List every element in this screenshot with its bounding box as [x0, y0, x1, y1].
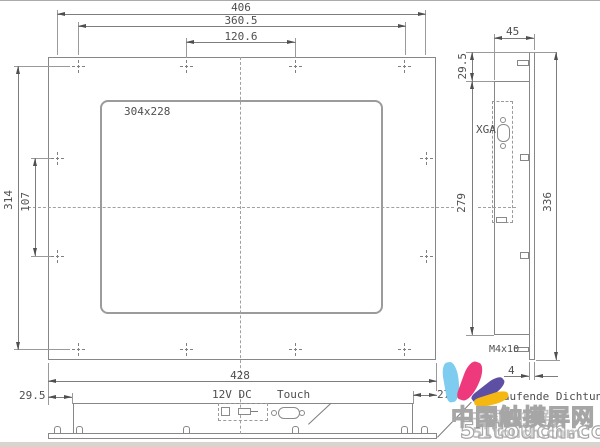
touch-connector-body: [278, 407, 300, 419]
mounting-clip: [76, 426, 83, 434]
vga-connector-screw: [500, 117, 506, 123]
mounting-hole: [51, 250, 64, 263]
watermark-url: 51touch.com: [460, 419, 600, 444]
mounting-hole: [420, 250, 433, 263]
side-centerline: [478, 207, 516, 208]
mounting-clip: [183, 426, 190, 434]
dim-arrow: [48, 379, 56, 383]
dim-arrow: [16, 66, 20, 74]
dim-label-279: 279: [456, 193, 468, 213]
vga-label: XGA: [476, 124, 496, 135]
ext-line: [72, 393, 73, 404]
ext-line: [425, 10, 426, 55]
dim-arrow: [57, 12, 65, 16]
mounting-hole: [180, 60, 193, 73]
touch-connector-screw: [299, 410, 305, 416]
mounting-hole: [72, 343, 85, 356]
mounting-hole: [398, 60, 411, 73]
dim-label-336: 336: [542, 192, 554, 212]
mounting-hole: [180, 343, 193, 356]
ext-line: [14, 66, 70, 67]
dim-label-29-5-side: 29.5: [457, 53, 469, 80]
dim-arrow: [526, 36, 534, 40]
power-plug-icon: [238, 408, 251, 415]
dim-arrow: [470, 52, 474, 60]
side-clip: [517, 60, 529, 66]
cad-drawing-canvas: 304x228 406 360.5 120.6 314 107: [0, 0, 600, 447]
dim-arrow: [535, 374, 543, 378]
top-edge-line: [0, 0, 600, 1]
ext-line: [436, 363, 437, 391]
dim-label-120-6: 120.6: [224, 31, 257, 42]
dim-arrow: [494, 36, 502, 40]
power-socket-icon: [221, 407, 230, 416]
vga-connector-body: [497, 124, 510, 142]
dim-label-428: 428: [230, 370, 250, 381]
dim-arrow: [554, 352, 558, 360]
ext-line: [295, 38, 296, 58]
ext-line: [534, 34, 535, 50]
stud-label: M4x10: [489, 344, 519, 355]
dim-arrow: [48, 395, 56, 399]
mounting-clip: [421, 426, 428, 434]
dim-arrow: [470, 73, 474, 81]
ext-line: [466, 52, 556, 53]
dim-arrow: [429, 379, 437, 383]
mounting-clip: [292, 426, 299, 434]
power-plug-pin: [251, 411, 258, 412]
mounting-hole: [289, 60, 302, 73]
mounting-hole: [398, 343, 411, 356]
dim-arrow: [413, 393, 421, 397]
ext-line: [494, 34, 495, 80]
dim-arrow: [470, 81, 474, 89]
ext-line: [31, 256, 51, 257]
dim-label-29-5-bottom: 29.5: [19, 390, 46, 401]
dim-label-406: 406: [231, 2, 251, 13]
ext-line: [14, 349, 70, 350]
dim-arrow: [78, 24, 86, 28]
side-clip: [520, 154, 529, 161]
ext-line: [536, 360, 560, 361]
mounting-hole: [72, 60, 85, 73]
ext-line: [466, 335, 494, 336]
touch-label: Touch: [277, 389, 310, 400]
dim-arrow: [287, 40, 295, 44]
dim-arrow: [16, 342, 20, 350]
dim-label-45: 45: [506, 26, 519, 37]
dim-arrow: [33, 248, 37, 256]
ext-line: [57, 10, 58, 55]
side-bottom-connector: [496, 217, 507, 223]
dim-line: [35, 158, 36, 256]
power-label: 12V DC: [212, 389, 252, 400]
side-clip: [520, 252, 529, 259]
mounting-clip: [401, 426, 408, 434]
dim-line: [556, 52, 557, 360]
dim-arrow: [186, 40, 194, 44]
dim-label-4: 4: [508, 365, 515, 376]
bottom-view-bezel-strip: [48, 433, 437, 439]
mounting-hole: [51, 152, 64, 165]
dim-arrow: [429, 393, 437, 397]
vertical-centerline: [240, 57, 241, 378]
ext-line: [529, 362, 530, 380]
mounting-hole: [420, 152, 433, 165]
horizontal-centerline: [28, 207, 454, 208]
dim-arrow: [33, 158, 37, 166]
dim-arrow: [470, 327, 474, 335]
dim-arrow: [554, 52, 558, 60]
touch-connector-screw: [271, 410, 277, 416]
dim-label-314: 314: [3, 190, 15, 210]
vga-connector-screw: [500, 143, 506, 149]
dim-label-107: 107: [20, 192, 32, 212]
dim-arrow: [64, 395, 72, 399]
dim-arrow: [418, 12, 426, 16]
dim-arrow: [398, 24, 406, 28]
mounting-hole: [289, 343, 302, 356]
dim-arrow: [521, 374, 529, 378]
mounting-clip: [54, 426, 61, 434]
screen-size-label: 304x228: [124, 106, 170, 117]
dim-label-360-5: 360.5: [224, 15, 257, 26]
dim-line: [472, 81, 473, 335]
